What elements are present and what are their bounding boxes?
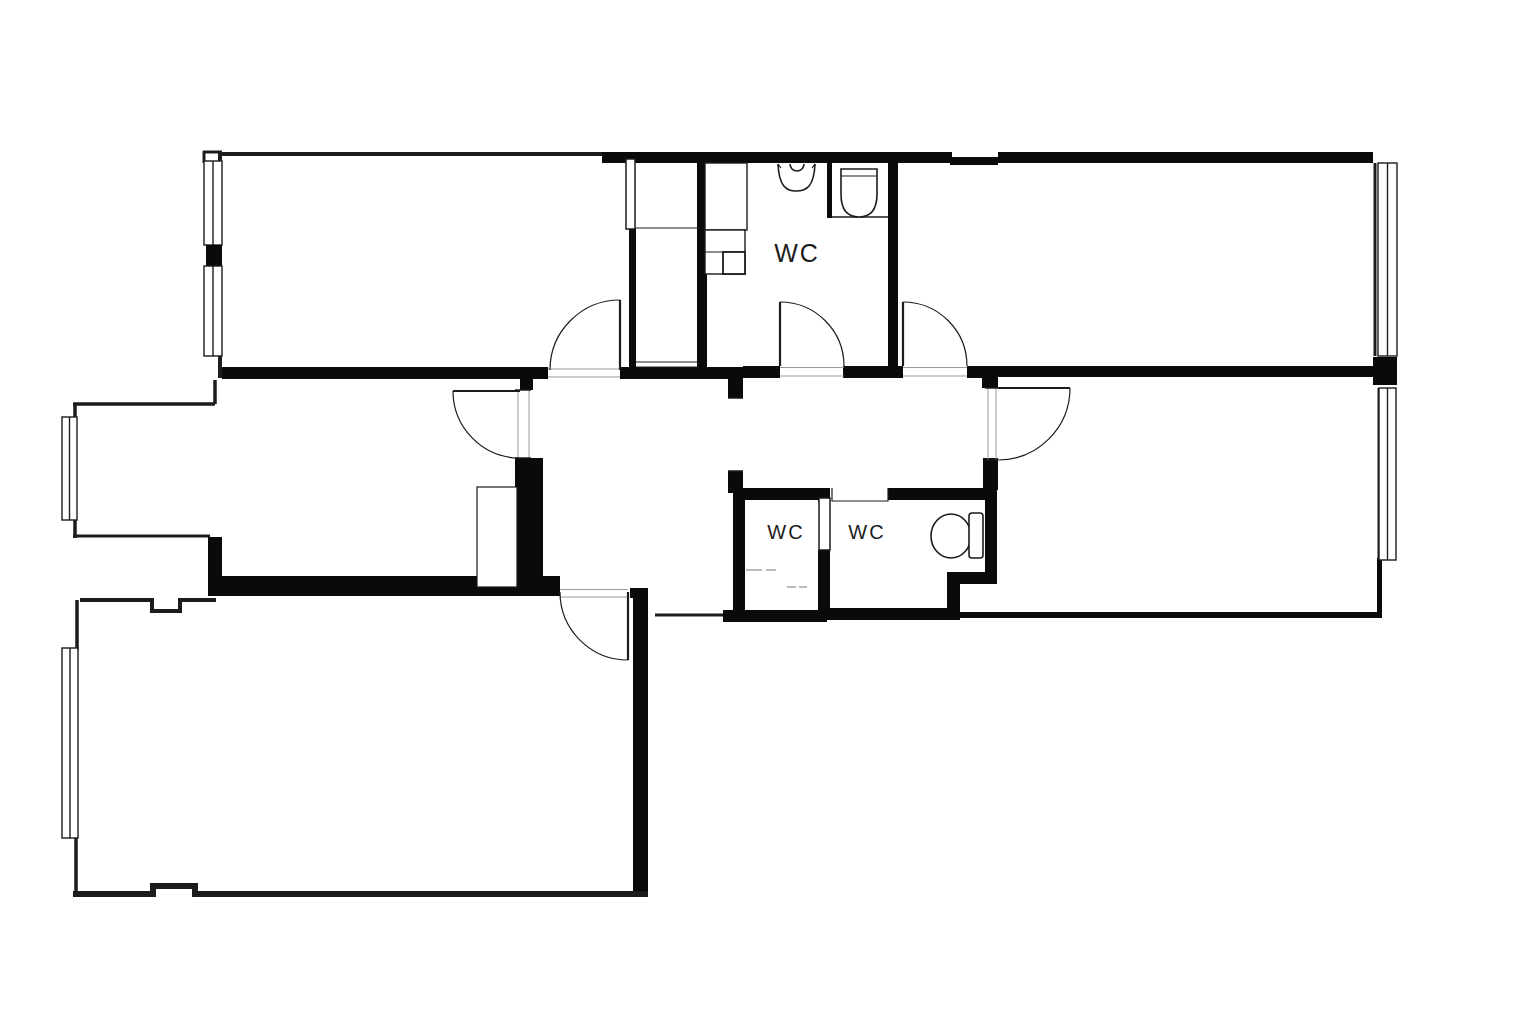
opening-threshold xyxy=(518,390,529,458)
wall-segment xyxy=(1373,357,1397,385)
room-label-wc-bottom-left: WC xyxy=(755,521,817,544)
sink-icon xyxy=(778,164,815,191)
window xyxy=(204,161,222,245)
opening-jamb xyxy=(728,398,743,471)
opening-threshold xyxy=(903,368,967,377)
wall-line xyxy=(80,600,216,611)
wall-segment xyxy=(827,608,960,620)
wall-segment xyxy=(222,367,520,379)
wall-segment xyxy=(1377,558,1382,616)
door-swing-arc xyxy=(550,300,620,370)
window xyxy=(1378,163,1397,356)
opening-recess xyxy=(832,488,888,501)
wall-segment xyxy=(520,367,533,390)
shaft-outline xyxy=(636,228,697,367)
opening-threshold xyxy=(780,368,844,377)
wall-line xyxy=(73,380,215,538)
cabinet xyxy=(705,163,747,230)
door-leaf-closed-wc xyxy=(819,498,830,550)
opening-threshold xyxy=(560,590,628,598)
wall-line xyxy=(73,886,648,894)
door-swing-arc xyxy=(780,302,844,366)
wall-segment xyxy=(533,367,548,379)
door-swing-arc xyxy=(998,388,1070,460)
toilet-icon xyxy=(841,169,877,217)
door-top-wc xyxy=(780,302,844,366)
window xyxy=(62,648,78,838)
door-leaf-closet xyxy=(626,159,635,229)
window xyxy=(204,266,222,356)
wall-segment xyxy=(515,458,543,596)
wall-segment xyxy=(998,152,1373,163)
closet xyxy=(477,487,517,587)
door-top-right-room xyxy=(903,302,967,366)
wall-segment xyxy=(723,610,827,622)
wall-segment xyxy=(888,152,898,368)
wall-segment xyxy=(898,152,952,163)
wall-segment xyxy=(985,488,997,582)
window xyxy=(62,417,77,520)
door-middle-right-room xyxy=(998,388,1070,460)
floor-plan: WC WC WC xyxy=(0,0,1536,1024)
door-top-left-room xyxy=(550,300,620,370)
window xyxy=(1379,388,1396,560)
wall-segment xyxy=(958,612,1382,618)
door-bottom-left-room xyxy=(560,592,628,660)
wall-segment xyxy=(633,588,648,897)
room-label-wc-bottom-right: WC xyxy=(836,521,898,544)
window-pier xyxy=(206,245,222,266)
floor-plan-drawing xyxy=(0,0,1536,1024)
wall-segment xyxy=(818,550,830,612)
wall-segment xyxy=(629,228,636,368)
toilet-icon xyxy=(931,513,983,558)
door-swing-arc xyxy=(453,391,518,458)
wall-segment xyxy=(997,366,1373,377)
door-middle-left-room xyxy=(453,391,520,458)
wall-segment xyxy=(827,152,832,218)
wall-segment xyxy=(967,366,997,378)
washbasin-unit xyxy=(723,252,745,274)
wall-segment xyxy=(950,157,998,165)
wall-segment xyxy=(888,488,997,500)
door-swing-arc xyxy=(560,592,628,660)
opening-threshold xyxy=(988,388,996,460)
door-swing-arc xyxy=(903,302,967,366)
wall-segment xyxy=(743,366,780,378)
wall-segment xyxy=(733,488,830,500)
wall-segment xyxy=(602,152,898,163)
wall-segment xyxy=(733,488,745,610)
opening-threshold xyxy=(548,369,620,377)
wall-segment xyxy=(728,377,743,398)
wall-segment xyxy=(620,367,743,379)
room-label-wc-top: WC xyxy=(766,239,828,268)
wall-segment xyxy=(982,377,998,388)
wall-segment xyxy=(983,458,998,490)
door-openings xyxy=(515,368,998,598)
dashed-marks xyxy=(746,570,807,587)
wall-segment xyxy=(208,537,222,580)
